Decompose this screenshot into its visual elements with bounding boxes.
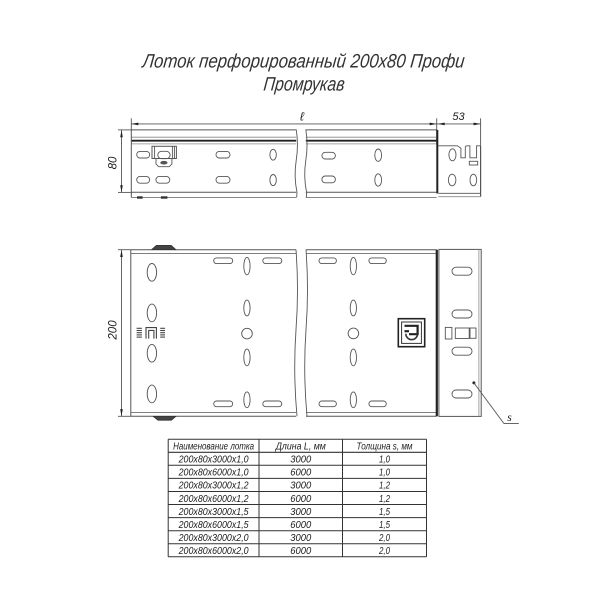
svg-text:6000: 6000 <box>290 494 312 505</box>
svg-text:200х80х6000х1,2: 200х80х6000х1,2 <box>178 494 249 505</box>
svg-text:Наименование лотка: Наименование лотка <box>173 442 254 453</box>
svg-text:1,0: 1,0 <box>379 468 390 479</box>
svg-text:200х80х6000х1,5: 200х80х6000х1,5 <box>178 520 249 531</box>
svg-text:s: s <box>507 412 512 424</box>
svg-text:53: 53 <box>452 111 465 123</box>
svg-text:80: 80 <box>108 156 120 169</box>
svg-text:3000: 3000 <box>290 481 312 492</box>
svg-text:2,0: 2,0 <box>378 533 390 544</box>
svg-text:3000: 3000 <box>290 455 312 466</box>
svg-text:3000: 3000 <box>290 507 312 518</box>
svg-text:200х80х3000х2,0: 200х80х3000х2,0 <box>178 533 249 544</box>
svg-text:200х80х6000х2,0: 200х80х6000х2,0 <box>178 546 249 557</box>
svg-text:1,2: 1,2 <box>379 494 390 505</box>
svg-text:1,5: 1,5 <box>379 507 390 518</box>
svg-text:1,0: 1,0 <box>379 455 390 466</box>
svg-text:200х80х3000х1,5: 200х80х3000х1,5 <box>178 507 249 518</box>
svg-text:3000: 3000 <box>290 533 312 544</box>
svg-text:1,2: 1,2 <box>379 481 390 492</box>
svg-text:1,5: 1,5 <box>379 520 390 531</box>
svg-text:200: 200 <box>108 320 120 341</box>
svg-text:Промрукав: Промрукав <box>262 74 345 96</box>
svg-text:2,0: 2,0 <box>378 546 390 557</box>
svg-text:200х80х3000х1,0: 200х80х3000х1,0 <box>178 455 249 466</box>
svg-text:6000: 6000 <box>290 546 312 557</box>
svg-text:6000: 6000 <box>290 468 312 479</box>
svg-text:200х80х3000х1,2: 200х80х3000х1,2 <box>178 481 249 492</box>
svg-text:Толщина s, мм: Толщина s, мм <box>357 442 413 453</box>
svg-text:6000: 6000 <box>290 520 312 531</box>
svg-text:Лоток перфорированный 200х80 П: Лоток перфорированный 200х80 Профи <box>140 50 466 72</box>
svg-text:200х80х6000х1,0: 200х80х6000х1,0 <box>178 468 249 479</box>
svg-text:Длина L, мм: Длина L, мм <box>275 442 326 453</box>
